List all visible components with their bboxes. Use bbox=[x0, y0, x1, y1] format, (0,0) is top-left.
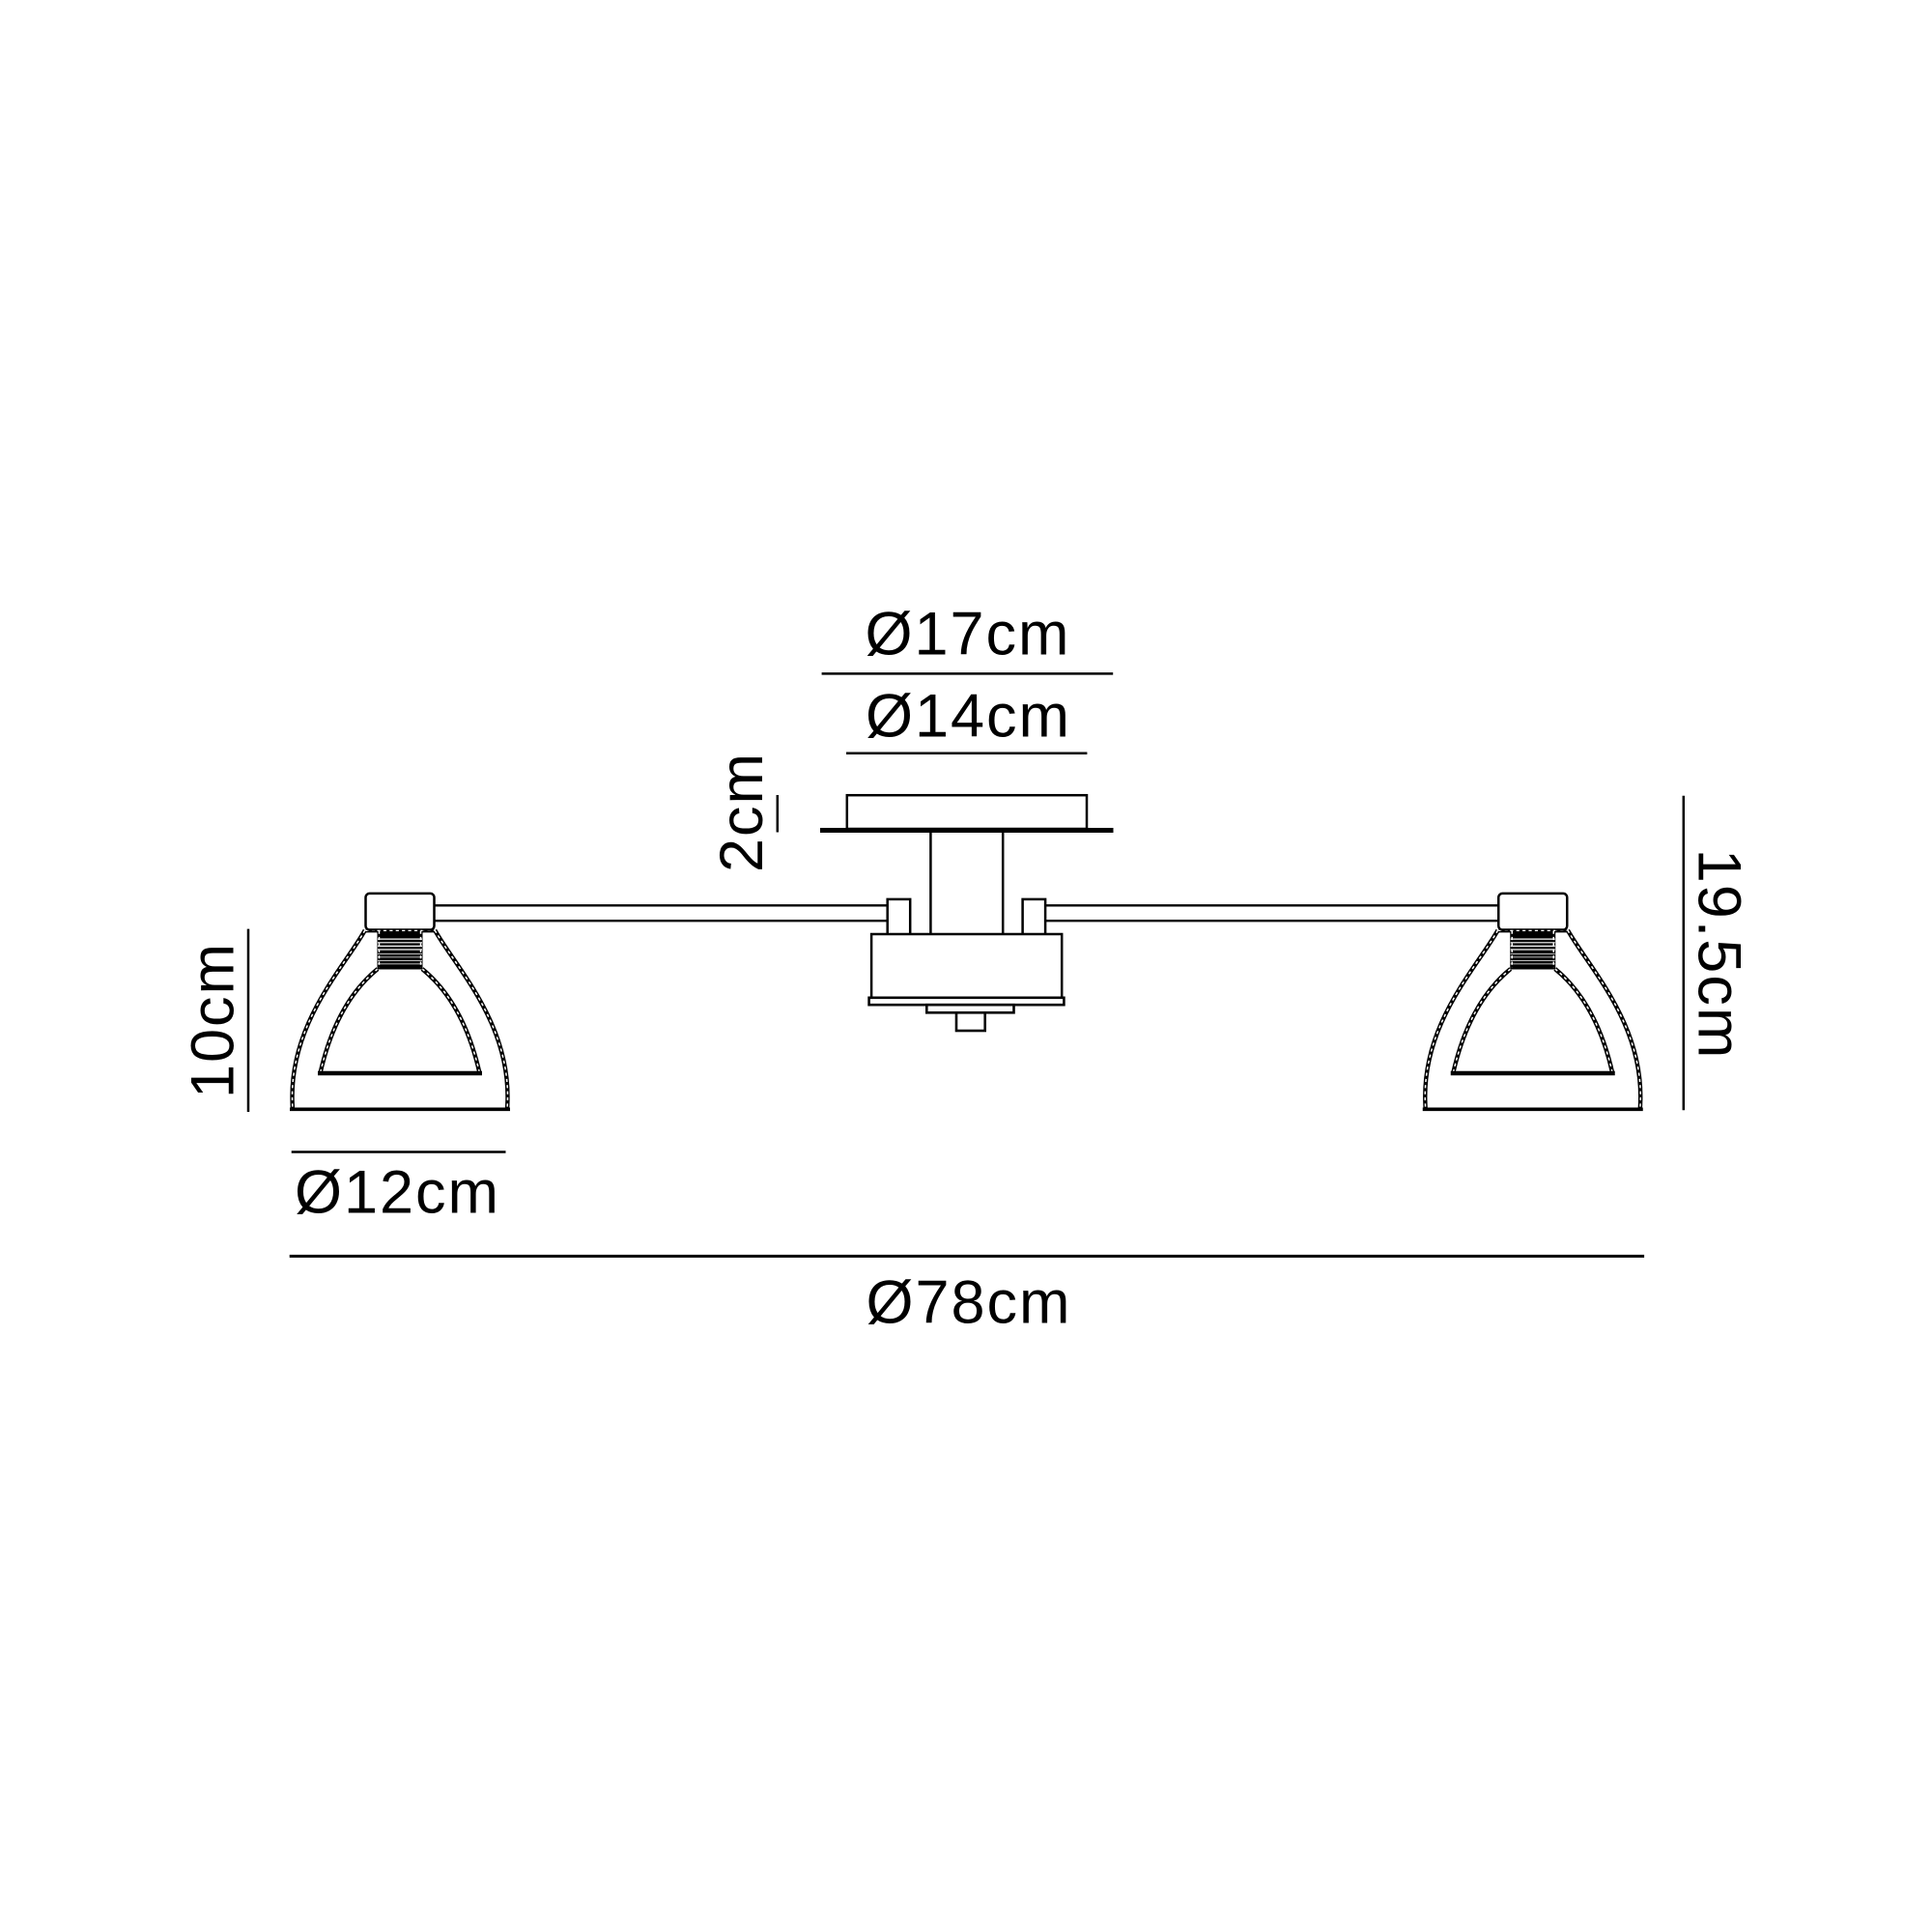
svg-text:19.5cm: 19.5cm bbox=[1686, 849, 1753, 1061]
svg-text:2cm: 2cm bbox=[708, 752, 776, 872]
svg-text:Ø14cm: Ø14cm bbox=[866, 683, 1071, 751]
svg-text:Ø12cm: Ø12cm bbox=[295, 1159, 500, 1227]
svg-text:10cm: 10cm bbox=[180, 942, 247, 1098]
svg-text:Ø78cm: Ø78cm bbox=[866, 1268, 1071, 1336]
svg-text:Ø17cm: Ø17cm bbox=[865, 601, 1070, 668]
